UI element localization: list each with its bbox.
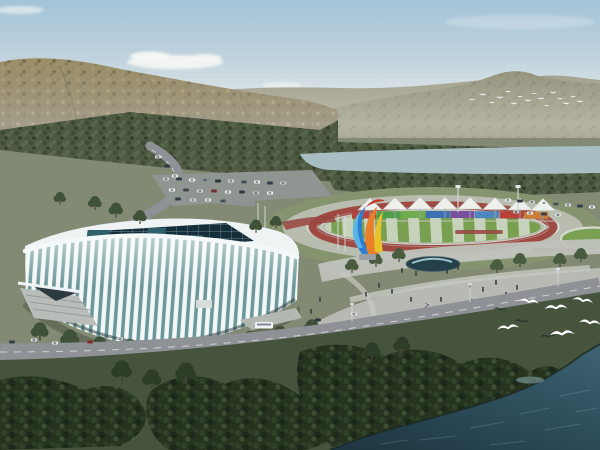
scene-rendering (0, 0, 600, 450)
screenshot-root (0, 0, 600, 450)
sculpture-pedestal (359, 254, 376, 260)
water-highlight (516, 377, 544, 384)
side-annex (196, 300, 212, 308)
cloud-haze (445, 15, 595, 29)
